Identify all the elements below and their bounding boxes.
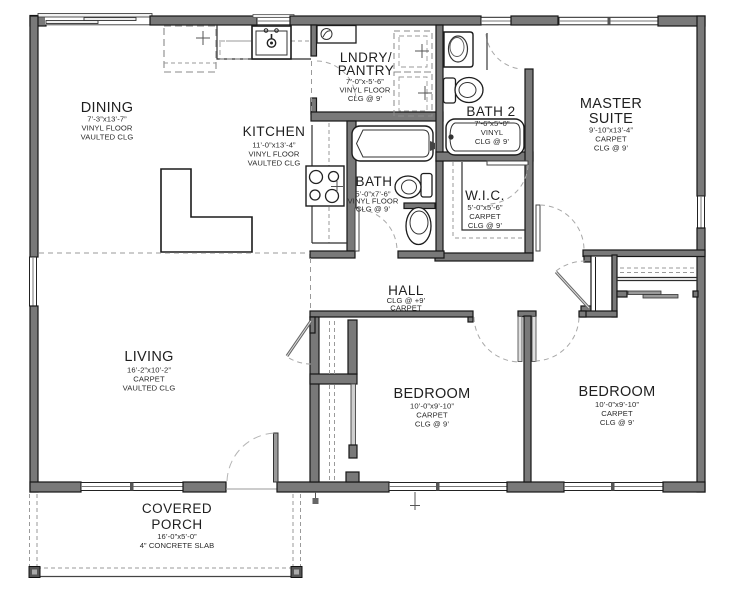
svg-text:16’-2”x10’-2”: 16’-2”x10’-2” <box>127 366 171 375</box>
svg-text:7’-6”x5’-0”: 7’-6”x5’-0” <box>474 119 510 128</box>
svg-text:PANTRY: PANTRY <box>338 63 395 78</box>
svg-text:CARPET: CARPET <box>390 304 422 313</box>
svg-text:MASTER: MASTER <box>580 96 642 112</box>
svg-text:VAULTED CLG: VAULTED CLG <box>248 159 301 168</box>
svg-text:CLG @ 9’: CLG @ 9’ <box>600 418 634 427</box>
svg-text:CLG @ 9’: CLG @ 9’ <box>415 420 449 429</box>
svg-text:CLG @ 9’: CLG @ 9’ <box>594 144 628 153</box>
svg-text:CARPET: CARPET <box>601 409 633 418</box>
svg-text:LIVING: LIVING <box>124 349 173 365</box>
svg-text:9’-10”x13’-4”: 9’-10”x13’-4” <box>589 126 633 135</box>
svg-text:CLG @ 9’: CLG @ 9’ <box>356 205 390 214</box>
svg-text:KITCHEN: KITCHEN <box>243 124 306 139</box>
svg-text:7’-3”x13’-7”: 7’-3”x13’-7” <box>87 115 127 124</box>
svg-text:CLG @ 9’: CLG @ 9’ <box>468 221 502 230</box>
svg-text:VAULTED CLG: VAULTED CLG <box>81 133 134 142</box>
svg-text:W.I.C.: W.I.C. <box>465 188 505 203</box>
svg-text:11’-0”x13’-4”: 11’-0”x13’-4” <box>252 141 296 150</box>
svg-text:10’-0”x9’-10”: 10’-0”x9’-10” <box>595 400 639 409</box>
svg-text:VINYL: VINYL <box>481 128 503 137</box>
svg-text:VINYL FLOOR: VINYL FLOOR <box>248 150 299 159</box>
svg-text:CLG @ 9’: CLG @ 9’ <box>475 137 509 146</box>
svg-text:BATH: BATH <box>355 174 392 189</box>
svg-text:5’-0”x5’-6”: 5’-0”x5’-6” <box>467 203 503 212</box>
svg-text:BATH 2: BATH 2 <box>466 104 515 119</box>
svg-text:PORCH: PORCH <box>151 517 202 532</box>
svg-text:BEDROOM: BEDROOM <box>578 384 655 400</box>
svg-text:CARPET: CARPET <box>416 411 448 420</box>
svg-text:VINYL FLOOR: VINYL FLOOR <box>81 124 132 133</box>
svg-text:16’-0”x5’-0”: 16’-0”x5’-0” <box>157 532 197 541</box>
svg-text:CLG @ 9’: CLG @ 9’ <box>348 94 382 103</box>
svg-text:VAULTED CLG: VAULTED CLG <box>123 384 176 393</box>
svg-text:CARPET: CARPET <box>595 135 627 144</box>
svg-text:COVERED: COVERED <box>142 501 212 516</box>
svg-text:4” CONCRETE SLAB: 4” CONCRETE SLAB <box>140 541 215 550</box>
svg-text:CARPET: CARPET <box>469 212 501 221</box>
svg-text:CARPET: CARPET <box>133 375 165 384</box>
svg-text:10’-0”x9’-10”: 10’-0”x9’-10” <box>410 402 454 411</box>
svg-text:BEDROOM: BEDROOM <box>393 386 470 402</box>
